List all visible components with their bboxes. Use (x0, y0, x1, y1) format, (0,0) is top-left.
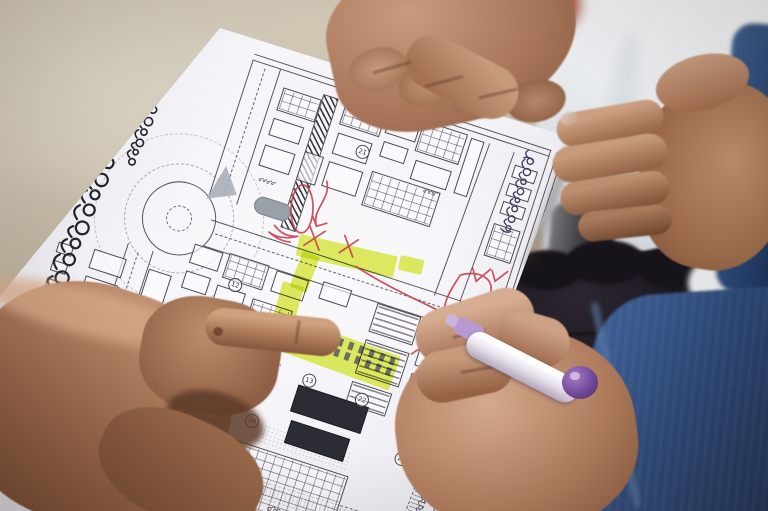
finger-mole (213, 327, 223, 336)
marker-cap (562, 366, 598, 399)
black-fabric-fold (566, 240, 646, 284)
photo-hands-over-blueprint: ผังบริเวณโรงพยาบาล แผนผัง (เวรเปล) (0, 0, 768, 511)
marker-cap-highlight (570, 372, 580, 380)
